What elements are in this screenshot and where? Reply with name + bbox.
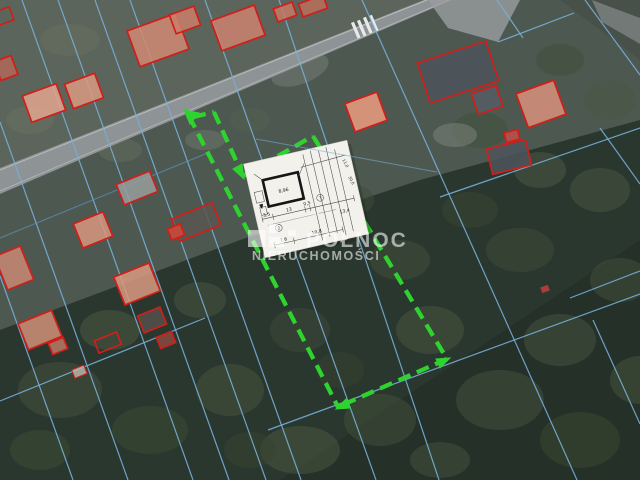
aerial-map-canvas: 8,96 3,5 13 0,5 (0, 0, 640, 480)
map-viewport[interactable]: 8,96 3,5 13 0,5 (0, 0, 640, 480)
